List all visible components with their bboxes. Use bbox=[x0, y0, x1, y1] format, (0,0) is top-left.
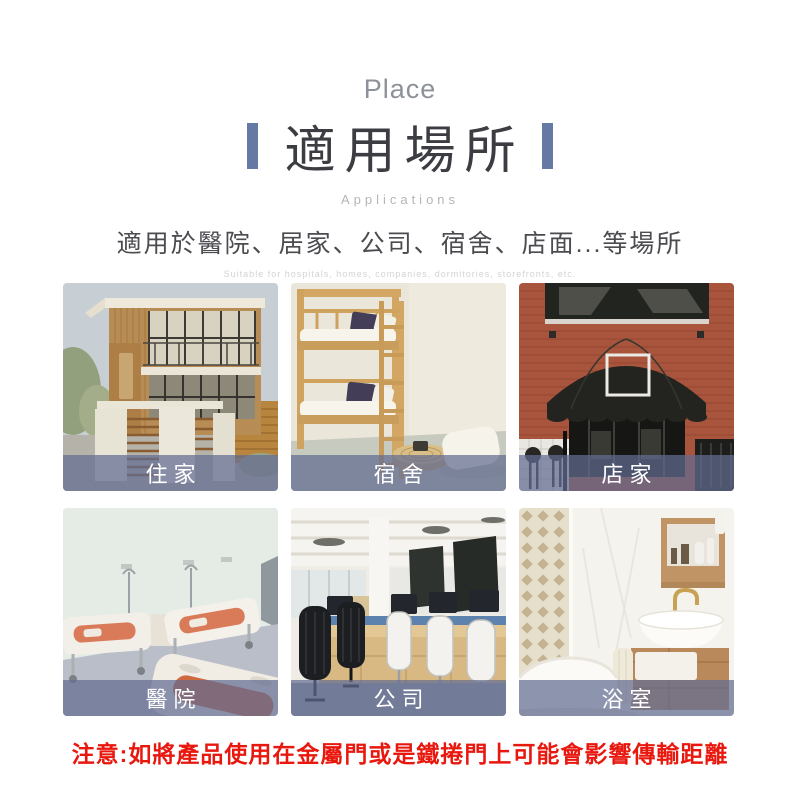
photo-label-bathroom: 浴室 bbox=[595, 682, 657, 714]
place-gallery: 住家 bbox=[63, 283, 734, 716]
photo-label-hospital: 醫院 bbox=[139, 682, 201, 714]
photo-label-store: 店家 bbox=[595, 457, 657, 489]
section-caption: Applications bbox=[0, 192, 800, 207]
photo-label-bar: 宿舍 bbox=[291, 455, 506, 491]
photo-label-bar: 公司 bbox=[291, 680, 506, 716]
intro-text-en: Suitable for hospitals, homes, companies… bbox=[0, 269, 800, 279]
gallery-card-store: 店家 bbox=[519, 283, 734, 491]
product-info-page: Place 適用場所 Applications 適用於醫院、居家、公司、宿舍、店… bbox=[0, 0, 800, 800]
title-accent-bar-left bbox=[247, 123, 258, 169]
gallery-card-hospital: 醫院 bbox=[63, 508, 278, 716]
gallery-card-bathroom: 浴室 bbox=[519, 508, 734, 716]
section-eyebrow: Place bbox=[0, 74, 800, 105]
photo-label-bar: 醫院 bbox=[63, 680, 278, 716]
gallery-card-home: 住家 bbox=[63, 283, 278, 491]
photo-label-dormitory: 宿舍 bbox=[367, 457, 429, 489]
photo-label-bar: 浴室 bbox=[519, 680, 734, 716]
photo-label-bar: 店家 bbox=[519, 455, 734, 491]
photo-label-bar: 住家 bbox=[63, 455, 278, 491]
gallery-card-office: 公司 bbox=[291, 508, 506, 716]
intro-text: 適用於醫院、居家、公司、宿舍、店面...等場所 bbox=[0, 224, 800, 260]
section-title: 適用場所 bbox=[275, 109, 524, 183]
title-accent-bar-right bbox=[542, 123, 553, 169]
photo-label-home: 住家 bbox=[139, 457, 201, 489]
gallery-card-dormitory: 宿舍 bbox=[291, 283, 506, 491]
photo-label-office: 公司 bbox=[367, 682, 429, 714]
section-title-row: 適用場所 bbox=[0, 109, 800, 183]
notice-text: 注意:如將產品使用在金屬門或是鐵捲門上可能會影響傳輸距離 bbox=[0, 735, 800, 769]
